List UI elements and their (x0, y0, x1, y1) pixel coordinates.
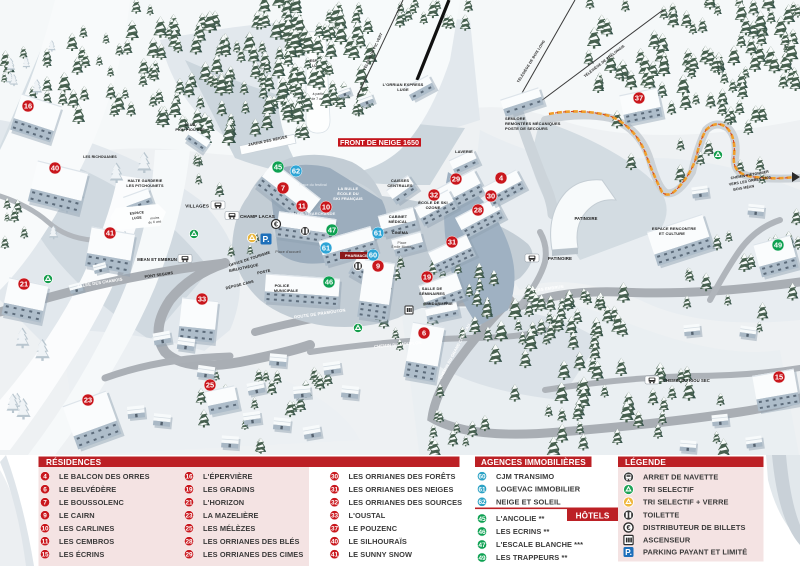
svg-text:49: 49 (478, 555, 486, 562)
svg-text:47: 47 (328, 226, 336, 235)
svg-text:31: 31 (331, 487, 339, 494)
svg-text:SÉMINAIRES: SÉMINAIRES (419, 291, 445, 296)
svg-text:POSTE DE SECOURS: POSTE DE SECOURS (505, 126, 548, 131)
svg-text:LE CAIRN: LE CAIRN (59, 511, 95, 520)
svg-text:37: 37 (331, 526, 339, 533)
svg-text:23: 23 (185, 513, 193, 520)
svg-text:32: 32 (331, 500, 339, 507)
svg-text:LE SUNNY SNOW: LE SUNNY SNOW (349, 550, 413, 559)
svg-text:40: 40 (51, 164, 59, 173)
svg-text:TRI SELECTIF: TRI SELECTIF (643, 485, 694, 494)
svg-text:11: 11 (42, 539, 49, 546)
svg-text:7: 7 (43, 500, 47, 507)
svg-text:LE BELVÉDÈRE: LE BELVÉDÈRE (59, 485, 116, 494)
svg-text:61: 61 (478, 486, 486, 493)
svg-text:30: 30 (331, 474, 339, 481)
svg-text:11: 11 (298, 202, 306, 211)
svg-text:49: 49 (774, 241, 782, 250)
svg-text:ASCENSEUR: ASCENSEUR (643, 536, 691, 545)
svg-text:LE BOUSSOLENC: LE BOUSSOLENC (59, 498, 125, 507)
svg-text:7: 7 (281, 184, 285, 193)
svg-text:6: 6 (43, 487, 47, 494)
svg-text:LES PITCHOUNETS: LES PITCHOUNETS (126, 184, 164, 188)
svg-text:4: 4 (43, 474, 47, 481)
svg-text:Place d'accueil: Place d'accueil (275, 250, 300, 254)
svg-text:ARRET DE NAVETTE: ARRET DE NAVETTE (643, 473, 718, 482)
svg-text:CHAMP LACAS: CHAMP LACAS (240, 214, 275, 219)
svg-text:60: 60 (369, 251, 377, 260)
svg-text:47: 47 (478, 542, 486, 549)
svg-text:LES ÉCRINS: LES ÉCRINS (59, 550, 104, 559)
svg-text:PARKING PAYANT ET LIMITÉ: PARKING PAYANT ET LIMITÉ (643, 548, 747, 557)
svg-text:CENTRALES: CENTRALES (387, 183, 413, 188)
svg-text:Place du festival: Place du festival (299, 183, 327, 187)
svg-text:LES TRAPPEURS **: LES TRAPPEURS ** (496, 553, 567, 562)
svg-text:GENDARMERIE: GENDARMERIE (423, 302, 453, 306)
svg-text:LES CARLINES: LES CARLINES (59, 524, 114, 533)
svg-text:46: 46 (478, 529, 486, 536)
svg-text:21: 21 (20, 280, 28, 289)
svg-text:RÉSIDENCES: RÉSIDENCES (46, 457, 102, 467)
svg-text:CINÉMA: CINÉMA (392, 230, 408, 235)
svg-text:16: 16 (24, 102, 32, 111)
svg-text:MUNICIPALE: MUNICIPALE (274, 289, 299, 293)
svg-text:LE POUZENC: LE POUZENC (349, 524, 398, 533)
svg-text:ET CULTURE: ET CULTURE (659, 231, 685, 236)
svg-text:MEAN ET EMBRUN: MEAN ET EMBRUN (137, 257, 177, 262)
svg-text:62: 62 (478, 499, 486, 506)
svg-text:33: 33 (198, 295, 206, 304)
svg-text:41: 41 (331, 552, 339, 559)
svg-text:LES ORRIANES DES NEIGES: LES ORRIANES DES NEIGES (349, 485, 454, 494)
svg-text:41: 41 (106, 229, 114, 238)
svg-text:OZONE: OZONE (426, 205, 441, 210)
svg-text:25: 25 (185, 526, 193, 533)
svg-text:9: 9 (376, 262, 380, 271)
svg-text:Émile Modou: Émile Modou (392, 244, 413, 249)
svg-text:LA MAZELIÈRE: LA MAZELIÈRE (203, 511, 259, 520)
svg-text:10: 10 (41, 526, 49, 533)
svg-text:DISTRIBUTEUR DE BILLETS: DISTRIBUTEUR DE BILLETS (643, 523, 746, 532)
svg-text:61: 61 (374, 229, 382, 238)
svg-text:61: 61 (322, 244, 330, 253)
svg-text:POLICE: POLICE (275, 284, 290, 288)
svg-text:LOGEVAC IMMOBILIER: LOGEVAC IMMOBILIER (496, 485, 581, 494)
svg-text:31: 31 (448, 238, 456, 247)
svg-text:37: 37 (635, 94, 643, 103)
svg-text:PIOU PIOU ESF: PIOU PIOU ESF (175, 128, 205, 132)
svg-text:LE SILHOURAÏS: LE SILHOURAÏS (349, 537, 407, 546)
svg-text:LES ORRIANES DES CIMES: LES ORRIANES DES CIMES (203, 550, 303, 559)
svg-text:CJM TRANSIMO: CJM TRANSIMO (496, 472, 554, 481)
svg-text:SKI FRANÇAIS: SKI FRANÇAIS (333, 196, 363, 201)
svg-text:60: 60 (478, 474, 486, 481)
svg-text:MÉDICAL: MÉDICAL (389, 219, 408, 224)
svg-text:32: 32 (430, 191, 438, 200)
svg-text:LES ECRINS **: LES ECRINS ** (496, 527, 549, 536)
svg-text:CHEMIN DU RIOU SEC: CHEMIN DU RIOU SEC (663, 378, 710, 383)
svg-text:TRI SELECTIF + VERRE: TRI SELECTIF + VERRE (643, 498, 729, 507)
svg-text:30: 30 (487, 192, 495, 201)
svg-text:PHARMACIE: PHARMACIE (345, 254, 369, 258)
svg-text:AGENCES IMMOBILIÈRES: AGENCES IMMOBILIÈRES (481, 457, 586, 467)
svg-text:L'HORIZON: L'HORIZON (203, 498, 244, 507)
svg-text:TOILETTE: TOILETTE (643, 511, 679, 520)
svg-text:à partir: à partir (313, 92, 325, 96)
svg-text:HALTE GARDERIE: HALTE GARDERIE (128, 179, 163, 183)
svg-text:28: 28 (474, 206, 482, 215)
svg-text:LES ORRIANES DES FORÊTS: LES ORRIANES DES FORÊTS (349, 472, 456, 481)
svg-text:15: 15 (41, 552, 49, 559)
svg-text:LES ORRIANES DES SOURCES: LES ORRIANES DES SOURCES (349, 498, 463, 507)
svg-text:L'ESCALE BLANCHE ***: L'ESCALE BLANCHE *** (496, 540, 583, 549)
svg-text:L'ÉPERVIÈRE: L'ÉPERVIÈRE (203, 472, 253, 481)
svg-text:FRONT DE NEIGE 1650: FRONT DE NEIGE 1650 (340, 138, 419, 147)
svg-text:15: 15 (775, 373, 783, 382)
svg-text:LES CEMBROS: LES CEMBROS (59, 537, 114, 546)
svg-text:9: 9 (43, 513, 47, 520)
svg-text:40: 40 (331, 539, 339, 546)
svg-text:10: 10 (322, 203, 330, 212)
svg-text:HÔTELS: HÔTELS (576, 509, 610, 520)
svg-text:19: 19 (423, 273, 431, 282)
svg-text:23: 23 (84, 396, 92, 405)
svg-text:LES MÉLÈZES: LES MÉLÈZES (203, 524, 255, 533)
svg-text:PATINOIRE: PATINOIRE (574, 216, 597, 221)
svg-text:LUGE: LUGE (397, 87, 409, 92)
svg-text:PATINOIRE: PATINOIRE (548, 256, 572, 261)
svg-text:VILLAGES: VILLAGES (185, 204, 209, 209)
svg-text:P.: P. (263, 234, 270, 244)
svg-text:CLUB: CLUB (185, 123, 196, 127)
svg-text:P.: P. (625, 547, 632, 557)
svg-text:45: 45 (274, 163, 282, 172)
svg-text:NEIGE ET SOLEIL: NEIGE ET SOLEIL (496, 497, 561, 506)
svg-text:19: 19 (185, 487, 193, 494)
svg-text:L'OUSTAL: L'OUSTAL (349, 511, 386, 520)
svg-text:LE BALCON DES ORRES: LE BALCON DES ORRES (59, 472, 150, 481)
svg-text:16: 16 (185, 474, 193, 481)
svg-text:21: 21 (185, 500, 193, 507)
svg-text:LAVERIE: LAVERIE (455, 149, 473, 154)
svg-text:33: 33 (331, 513, 339, 520)
svg-text:€: € (274, 222, 278, 229)
svg-text:LES ORRIANES DES BLÉS: LES ORRIANES DES BLÉS (203, 537, 300, 546)
svg-text:L'ANCOLIE **: L'ANCOLIE ** (496, 514, 545, 523)
svg-text:29: 29 (452, 175, 460, 184)
svg-text:LES GRADINS: LES GRADINS (203, 485, 255, 494)
svg-text:€: € (626, 523, 630, 532)
svg-text:46: 46 (325, 278, 333, 287)
svg-text:29: 29 (185, 552, 193, 559)
svg-text:45: 45 (478, 516, 486, 523)
svg-text:LES RICHOUANES: LES RICHOUANES (83, 155, 117, 159)
svg-text:28: 28 (185, 539, 193, 546)
svg-text:62: 62 (292, 167, 300, 176)
svg-text:LÉGENDE: LÉGENDE (625, 457, 666, 467)
svg-text:6: 6 (422, 329, 426, 338)
svg-text:25: 25 (206, 381, 214, 390)
